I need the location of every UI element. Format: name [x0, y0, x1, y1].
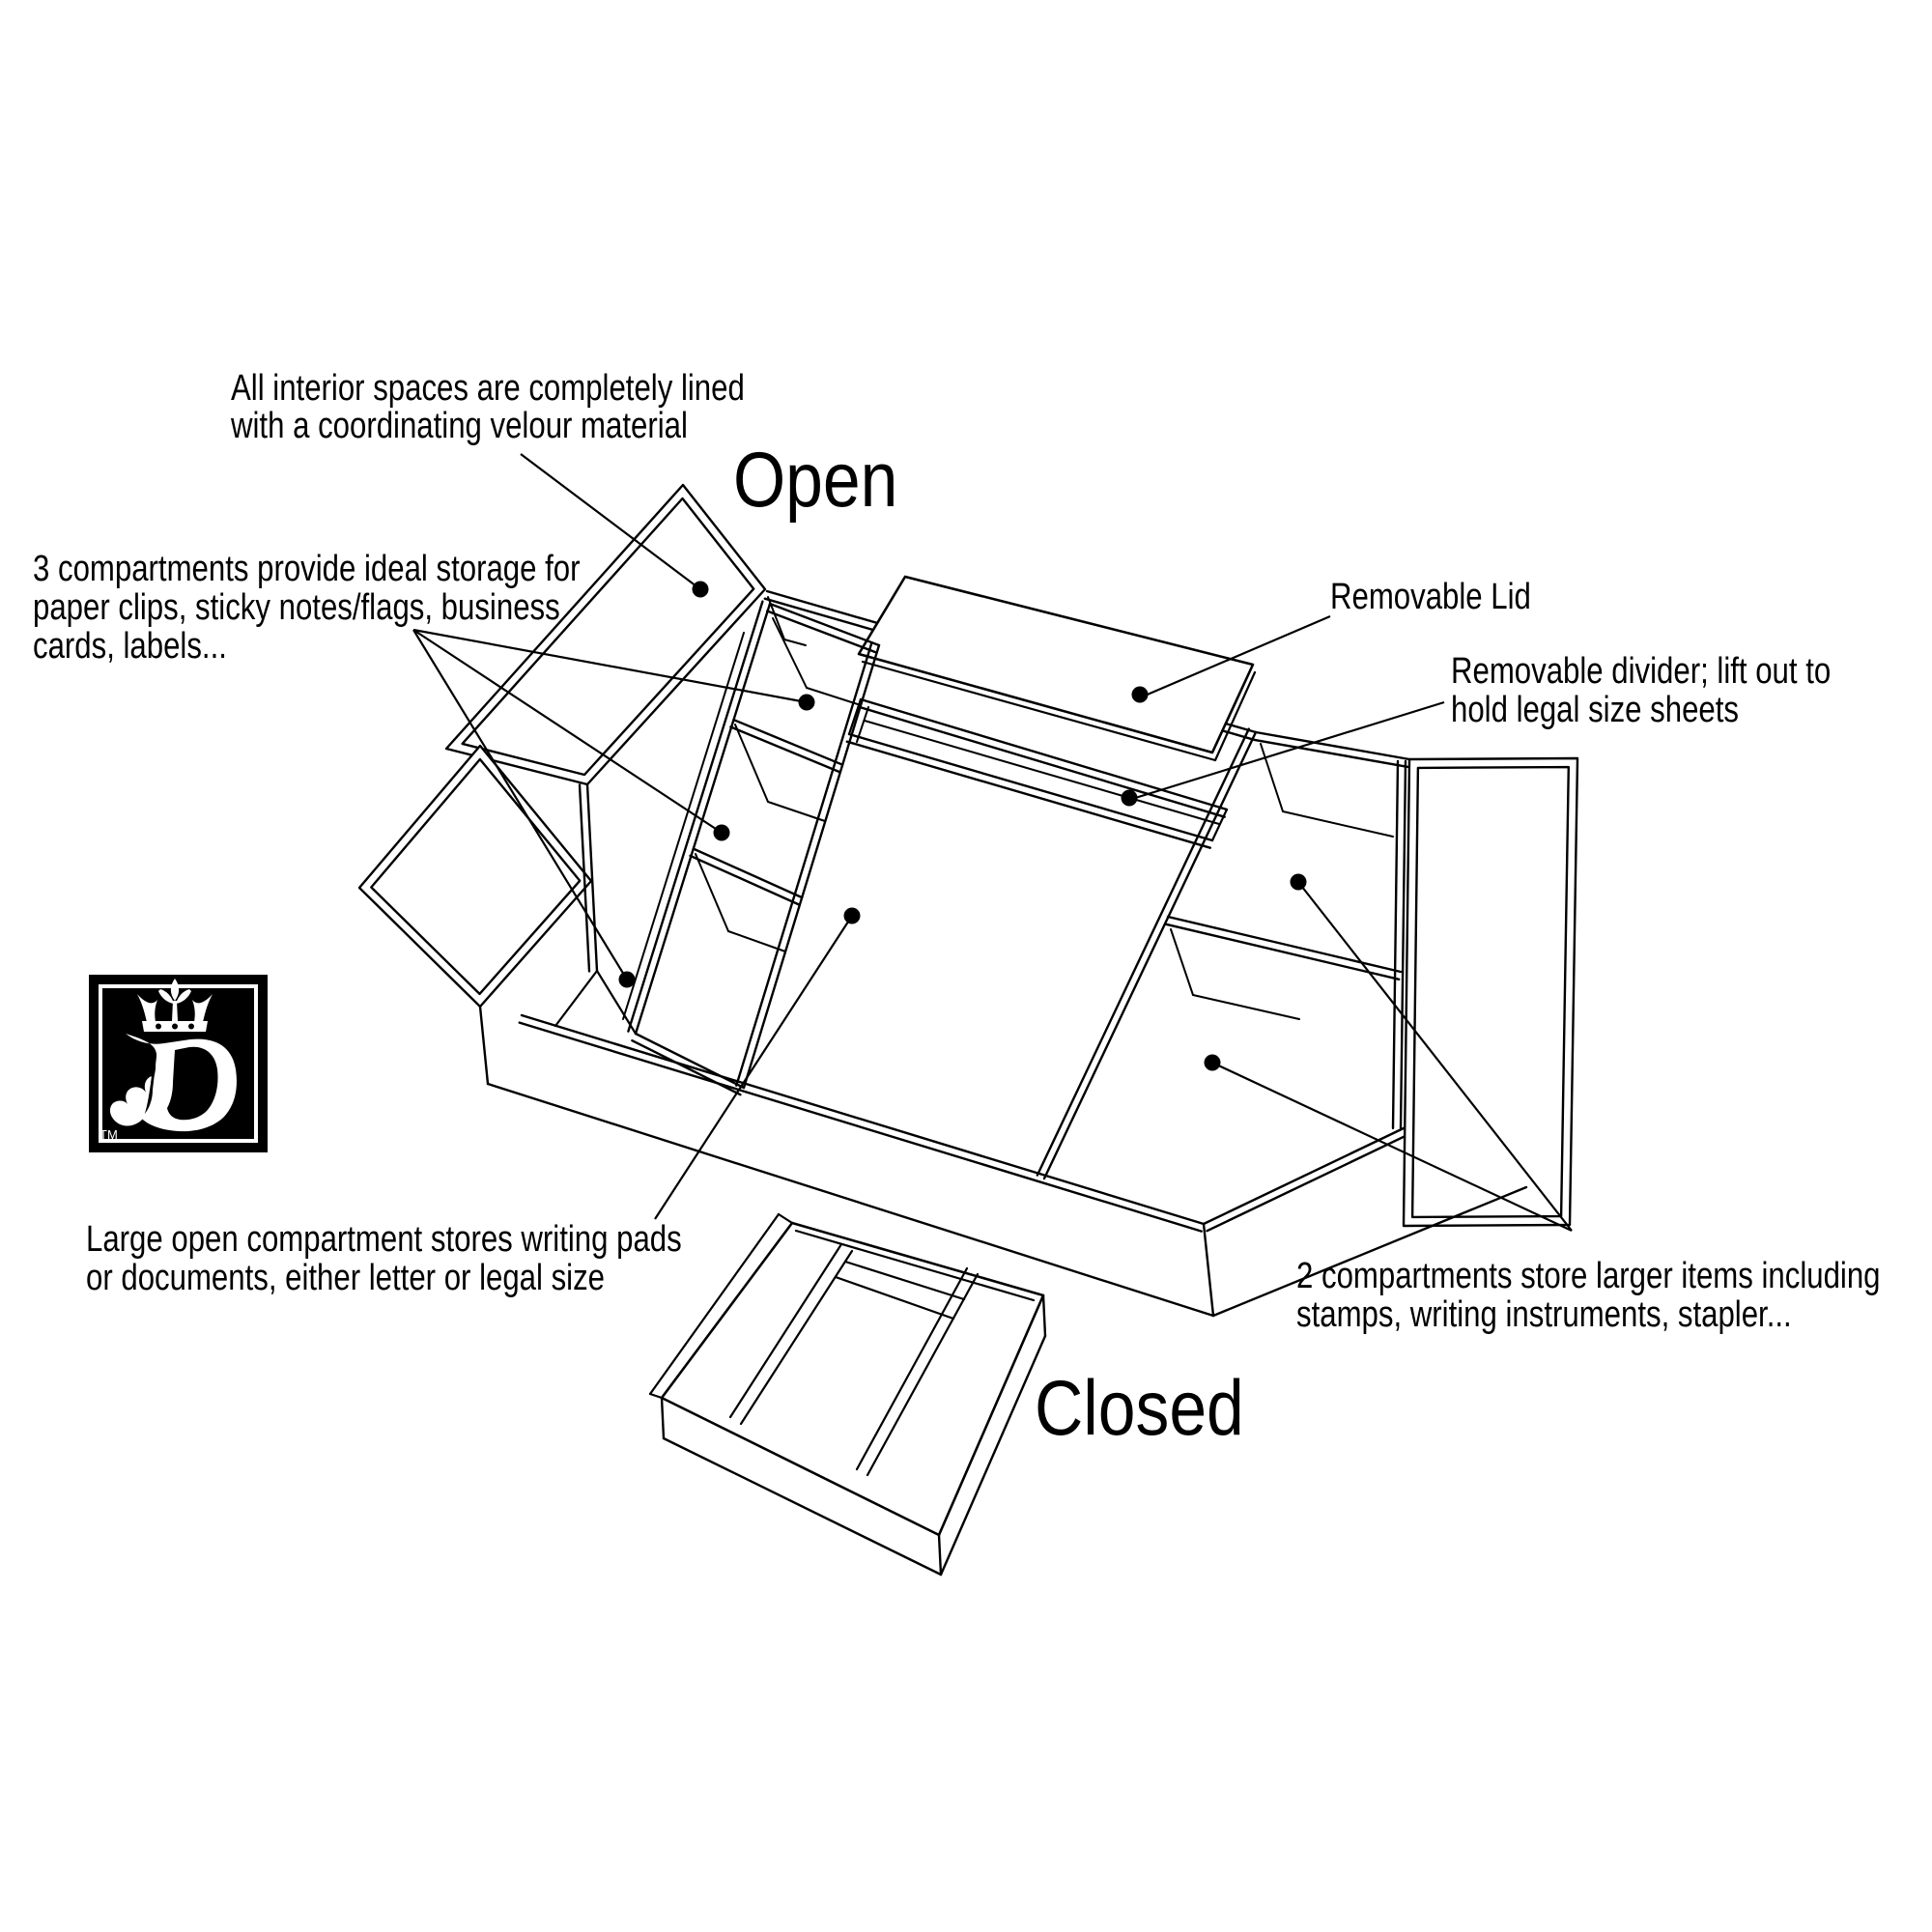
svg-text:Removable Lid: Removable Lid	[1330, 577, 1531, 617]
svg-text:paper clips, sticky notes/flag: paper clips, sticky notes/flags, busines…	[33, 587, 560, 628]
svg-text:Closed: Closed	[1035, 1365, 1244, 1452]
svg-text:TM: TM	[99, 1127, 118, 1142]
svg-text:hold legal size sheets: hold legal size sheets	[1451, 690, 1739, 730]
svg-text:Large open compartment stores: Large open compartment stores writing pa…	[86, 1219, 682, 1260]
svg-text:stamps, writing instruments, s: stamps, writing instruments, stapler...	[1296, 1294, 1792, 1335]
svg-text:3 compartments provide ideal s: 3 compartments provide ideal storage for	[33, 549, 581, 589]
svg-text:Removable divider; lift out to: Removable divider; lift out to	[1451, 651, 1831, 692]
svg-text:2 compartments store larger it: 2 compartments store larger items includ…	[1296, 1256, 1881, 1296]
svg-text:with a coordinating velour mat: with a coordinating velour material	[230, 406, 688, 446]
svg-text:or documents, either letter or: or documents, either letter or legal siz…	[86, 1258, 605, 1298]
svg-text:Open: Open	[733, 437, 897, 524]
svg-text:All interior spaces are comple: All interior spaces are completely lined	[231, 368, 745, 409]
svg-text:cards, labels...: cards, labels...	[33, 626, 227, 667]
